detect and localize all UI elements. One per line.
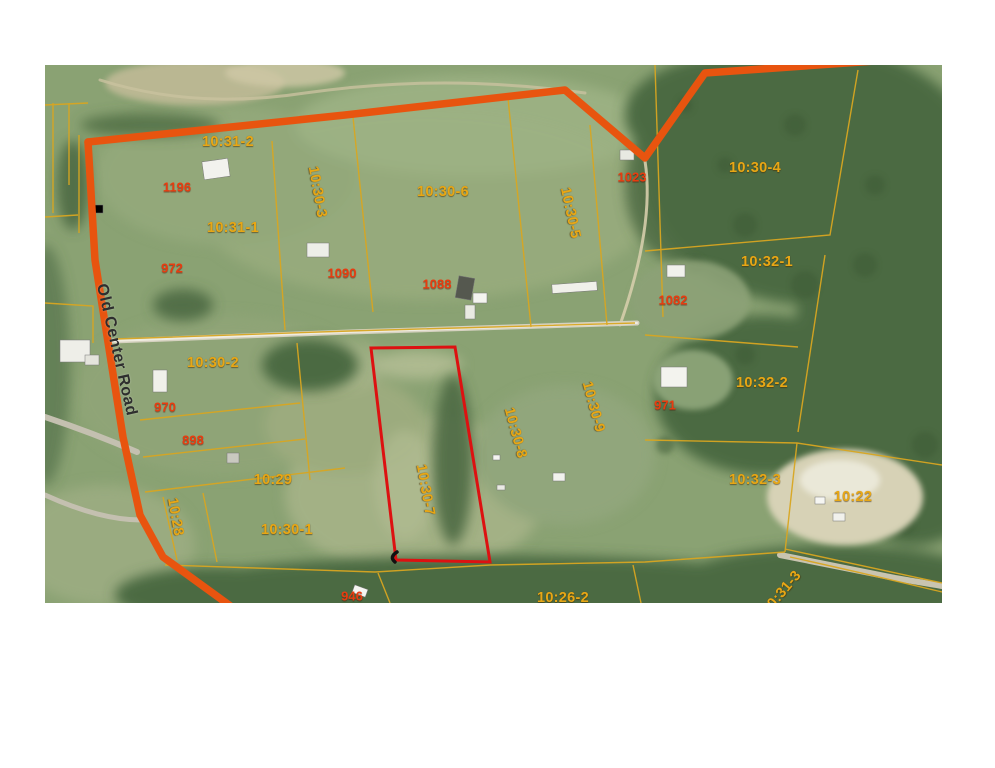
satellite-imagery <box>45 65 942 603</box>
aerial-parcel-map: 10:31-210:30-310:31-110:30-610:30-510:30… <box>45 65 942 603</box>
page: { "map": { "description": "Aerial parcel… <box>0 0 995 768</box>
